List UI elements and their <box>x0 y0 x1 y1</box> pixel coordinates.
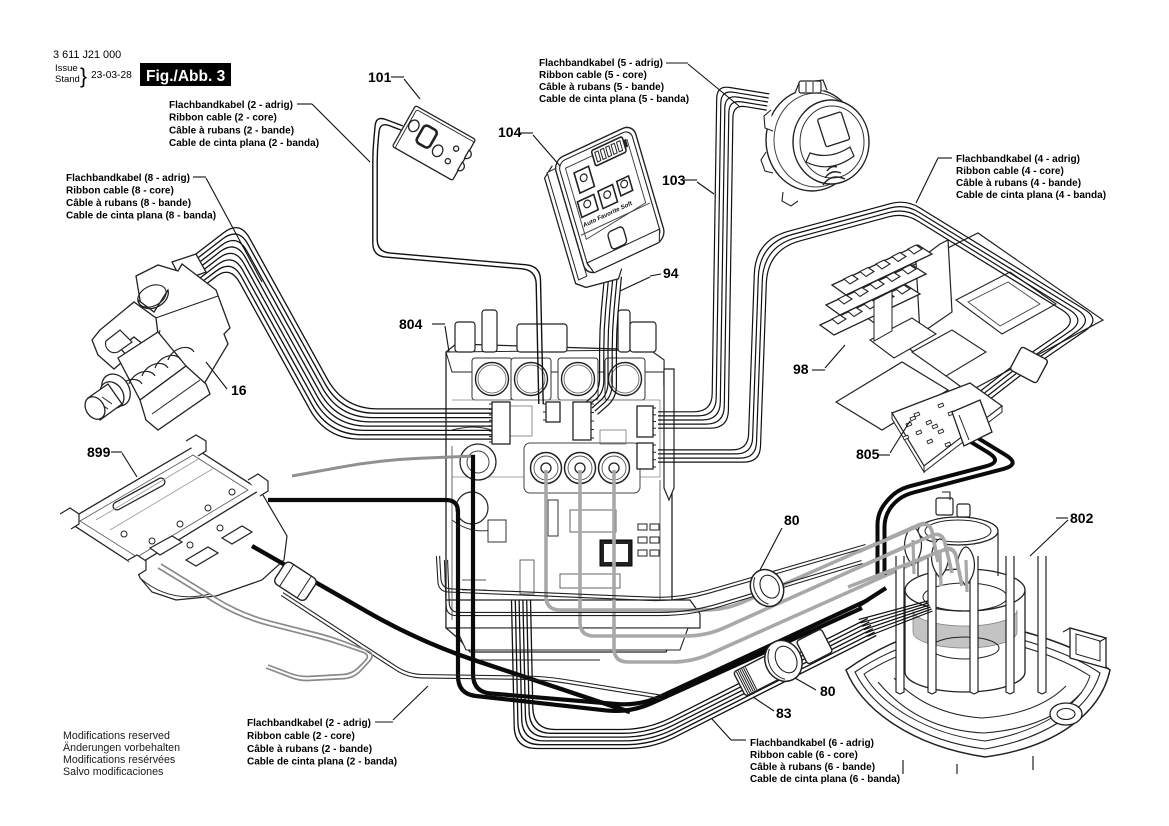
svg-text:Câble à rubans (2 - bande): Câble à rubans (2 - bande) <box>169 125 294 136</box>
svg-text:3 611 J21 000: 3 611 J21 000 <box>53 49 121 61</box>
svg-text:80: 80 <box>820 683 836 699</box>
svg-text:101: 101 <box>368 69 392 85</box>
svg-text:Flachbandkabel (5 - adrig): Flachbandkabel (5 - adrig) <box>539 58 663 69</box>
svg-text:Cable de cinta plana (4 - band: Cable de cinta plana (4 - banda) <box>956 190 1106 201</box>
svg-text:Câble à rubans (8 - bande): Câble à rubans (8 - bande) <box>66 198 191 209</box>
svg-text:94: 94 <box>663 265 679 281</box>
svg-text:Ribbon cable (4 - core): Ribbon cable (4 - core) <box>956 166 1064 177</box>
svg-text:Câble à rubans (4 - bande): Câble à rubans (4 - bande) <box>956 178 1081 189</box>
svg-text:98: 98 <box>793 361 809 377</box>
svg-text:805: 805 <box>856 446 880 462</box>
svg-text:Cable de cinta plana (2 - band: Cable de cinta plana (2 - banda) <box>247 757 397 768</box>
svg-text:16: 16 <box>231 382 247 398</box>
svg-text:Câble à rubans (2 - bande): Câble à rubans (2 - bande) <box>247 744 372 755</box>
svg-text:Flachbandkabel (4 - adrig): Flachbandkabel (4 - adrig) <box>956 154 1080 165</box>
svg-text:Stand: Stand <box>55 74 80 85</box>
svg-text:Cable de cinta plana (6 - band: Cable de cinta plana (6 - banda) <box>750 774 900 785</box>
svg-text:Ribbon cable (5 - core): Ribbon cable (5 - core) <box>539 70 647 81</box>
svg-text:Fig./Abb. 3: Fig./Abb. 3 <box>146 68 226 85</box>
svg-text:Flachbandkabel (6 - adrig): Flachbandkabel (6 - adrig) <box>750 738 874 749</box>
svg-text:104: 104 <box>498 124 522 140</box>
svg-text:23-03-28: 23-03-28 <box>91 70 132 81</box>
svg-text:Modifications reserved: Modifications reserved <box>63 730 170 742</box>
svg-text:Flachbandkabel (8 - adrig): Flachbandkabel (8 - adrig) <box>66 173 190 184</box>
svg-text:Issue: Issue <box>55 63 78 74</box>
svg-text:80: 80 <box>784 512 800 528</box>
svg-text:Flachbandkabel (2 - adrig): Flachbandkabel (2 - adrig) <box>247 718 371 729</box>
svg-text:Cable de cinta plana (8 - band: Cable de cinta plana (8 - banda) <box>66 211 216 222</box>
svg-text:Modifications resérvées: Modifications resérvées <box>63 754 175 766</box>
svg-text:899: 899 <box>87 444 111 460</box>
svg-text:Ribbon cable (8 - core): Ribbon cable (8 - core) <box>66 186 174 197</box>
svg-text:83: 83 <box>776 705 792 721</box>
svg-text:804: 804 <box>399 316 423 332</box>
svg-text:Salvo modificaciones: Salvo modificaciones <box>63 766 163 778</box>
svg-text:802: 802 <box>1070 510 1094 526</box>
svg-text:Cable de cinta plana (5 - band: Cable de cinta plana (5 - banda) <box>539 94 689 105</box>
svg-text:Câble à rubans (6 - bande): Câble à rubans (6 - bande) <box>750 762 875 773</box>
svg-text:103: 103 <box>662 172 686 188</box>
svg-text:Flachbandkabel (2 - adrig): Flachbandkabel (2 - adrig) <box>169 100 293 111</box>
svg-text:Ribbon cable (2 - core): Ribbon cable (2 - core) <box>247 731 355 742</box>
svg-text:Câble à rubans (5 - bande): Câble à rubans (5 - bande) <box>539 82 664 93</box>
svg-text:Cable de cinta plana (2 - band: Cable de cinta plana (2 - banda) <box>169 138 319 149</box>
svg-text:Ribbon cable (2 - core): Ribbon cable (2 - core) <box>169 113 277 124</box>
svg-text:}: } <box>80 65 87 88</box>
svg-text:Ribbon cable (6 - core): Ribbon cable (6 - core) <box>750 750 858 761</box>
svg-text:Änderungen vorbehalten: Änderungen vorbehalten <box>63 742 180 754</box>
